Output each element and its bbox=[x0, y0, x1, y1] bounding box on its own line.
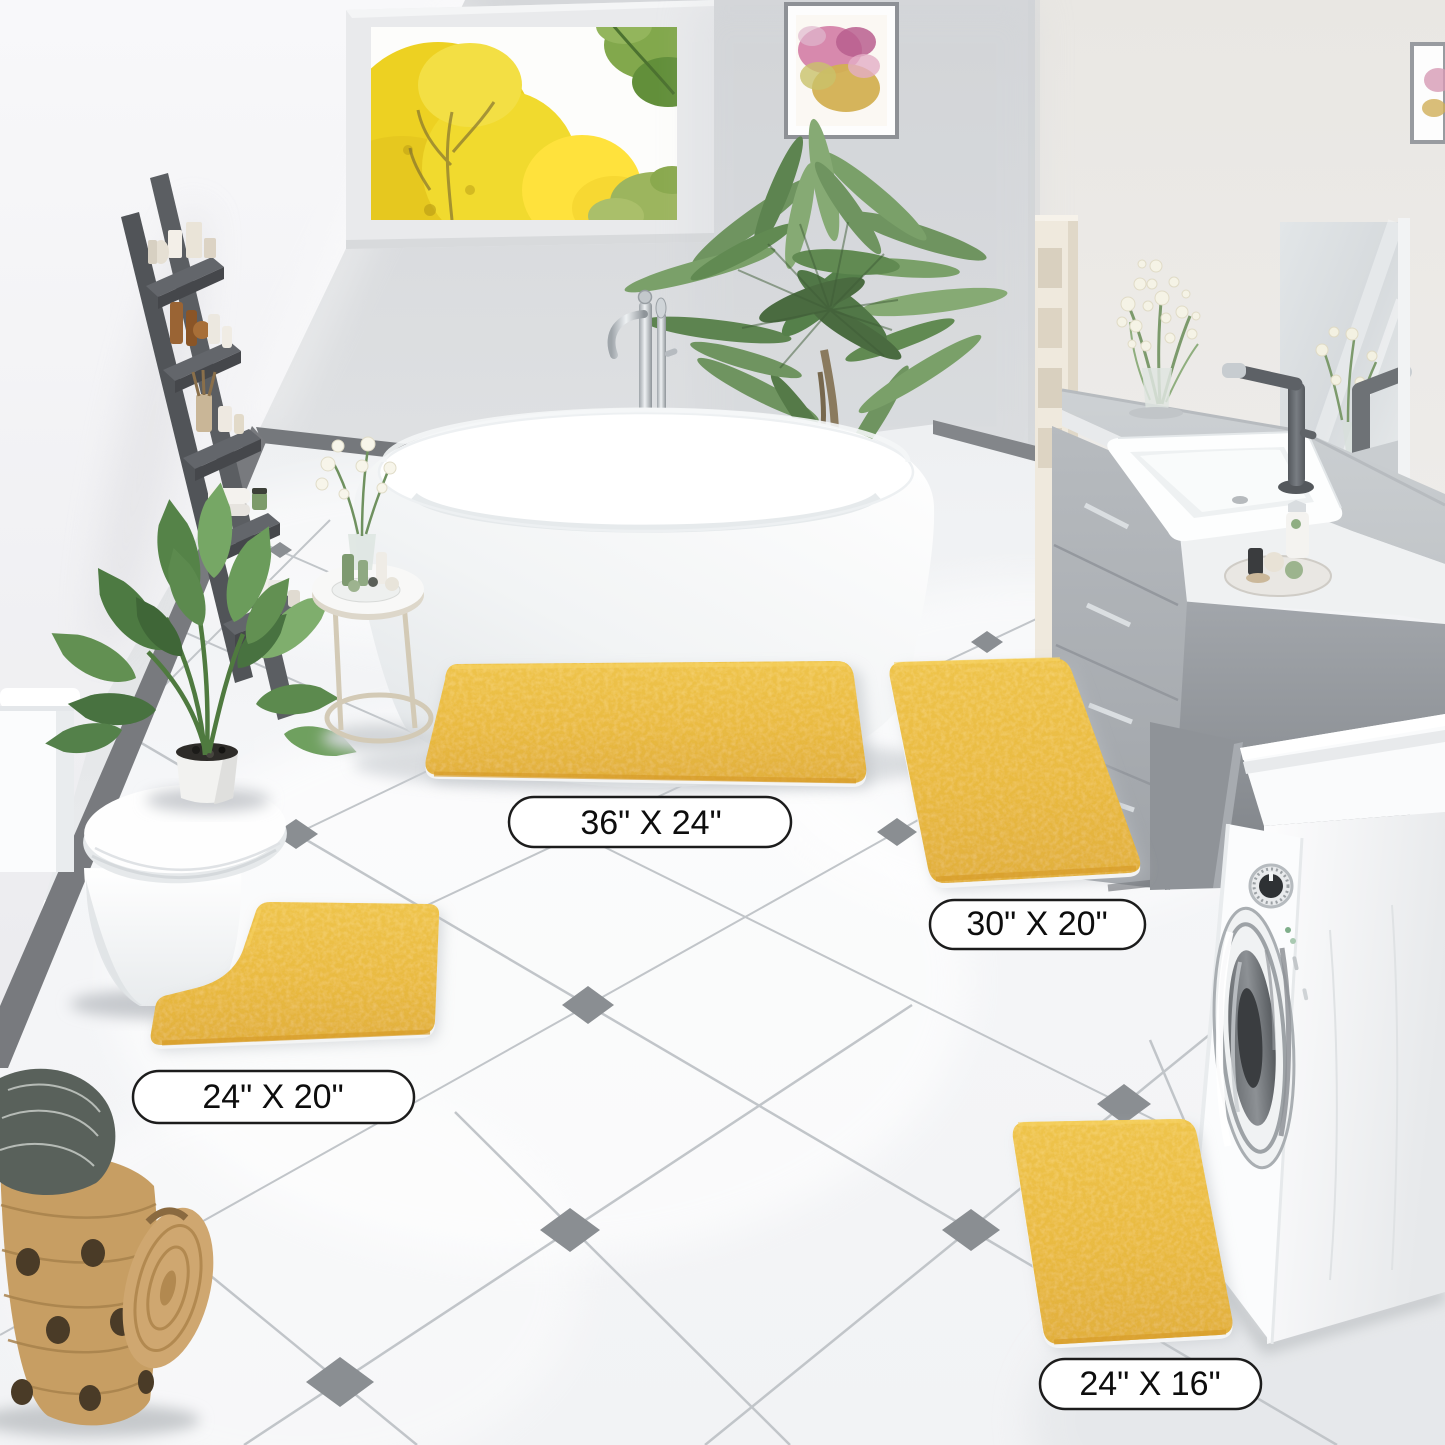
svg-text:24" X 16": 24" X 16" bbox=[1079, 1365, 1220, 1403]
svg-text:36" X 24": 36" X 24" bbox=[580, 804, 721, 842]
svg-text:30" X 20": 30" X 20" bbox=[966, 905, 1107, 943]
svg-text:24" X 20": 24" X 20" bbox=[202, 1078, 343, 1116]
